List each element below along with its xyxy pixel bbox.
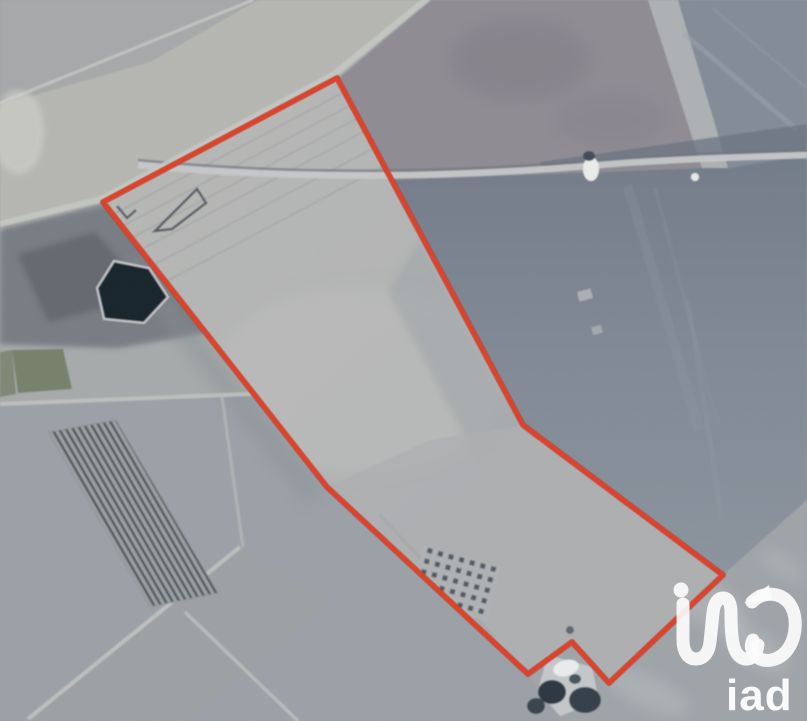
listing-photo: iad [0, 0, 807, 721]
iad-logo-text: iad [726, 671, 793, 720]
aerial-photo: iad [0, 0, 807, 721]
